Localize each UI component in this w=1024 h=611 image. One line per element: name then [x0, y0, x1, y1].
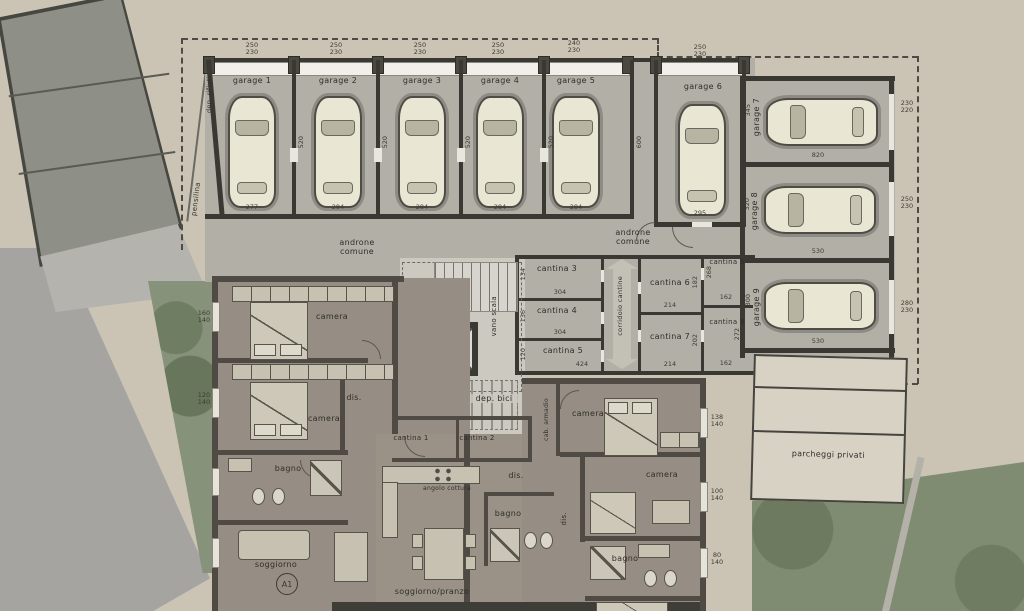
room-label: garage 4	[470, 76, 530, 85]
dimension: 304	[548, 329, 572, 336]
boundary-dashed-left	[181, 38, 183, 250]
cantina-door	[601, 270, 604, 282]
garage-bottom-wall	[205, 214, 634, 219]
wardrobe	[232, 364, 394, 380]
dimension: 268	[706, 266, 713, 278]
wc-fixture	[644, 570, 657, 587]
chair	[412, 534, 423, 548]
car	[764, 282, 876, 330]
car	[228, 96, 276, 208]
garage-divider	[459, 60, 463, 218]
wall	[218, 450, 348, 455]
room-label: garage 5	[546, 76, 606, 85]
dep-bici-label: dep. bici	[466, 394, 522, 403]
parcheggi-privati-label: parcheggi privati	[791, 449, 865, 460]
car	[766, 98, 878, 146]
wall-niche	[374, 148, 382, 162]
apartment-top-wall	[212, 276, 404, 282]
cantina-divider	[517, 298, 603, 301]
dimension: 160 140	[196, 310, 212, 324]
garage9-door	[889, 280, 894, 334]
cantina-divider	[701, 305, 753, 308]
bed	[596, 602, 668, 611]
car	[678, 104, 726, 216]
window	[212, 468, 220, 496]
garage7-top-wall	[744, 76, 895, 81]
boundary-dashed-jog	[657, 38, 659, 58]
washbasin	[228, 458, 252, 472]
garage8-9-divider	[744, 258, 890, 263]
wall	[484, 492, 488, 566]
window	[212, 302, 220, 332]
room-label: bagno	[486, 509, 530, 518]
wardrobe	[232, 286, 394, 302]
dimension: 250 230	[692, 44, 708, 58]
room-label: cantina 8	[700, 258, 754, 266]
bidet-fixture	[272, 488, 285, 505]
dimension: 280 230	[899, 300, 915, 314]
dimension: 214	[658, 361, 682, 368]
room-label: bagno	[266, 464, 310, 473]
room-label: cantina 2	[452, 434, 502, 442]
cantina-door	[601, 350, 604, 362]
bed	[590, 492, 636, 534]
room-label: garage 1	[222, 76, 282, 85]
room-label: garage 8	[750, 192, 759, 230]
room-label: camera	[640, 470, 684, 479]
room-label: angolo cottura	[414, 486, 480, 493]
pillow	[254, 424, 276, 436]
kitchen-counter	[382, 482, 398, 538]
dimension: 284	[562, 204, 590, 211]
dimension: 320	[744, 198, 751, 210]
androne-comune-label: androne comune	[330, 238, 384, 256]
bidet-fixture	[664, 570, 677, 587]
pillow	[632, 402, 652, 414]
room-label: dis.	[504, 471, 528, 480]
dimension: 520	[382, 136, 389, 148]
room-label: cantina 5	[528, 346, 598, 355]
dimension: 600	[636, 136, 643, 148]
car	[764, 186, 876, 234]
window	[700, 408, 708, 438]
dimension: 80 140	[709, 552, 725, 566]
garage-door-6	[658, 62, 744, 76]
dimension: 520	[465, 136, 472, 148]
dimension: 345	[745, 104, 752, 116]
dimension: 424	[570, 361, 594, 368]
dimension: 520	[548, 136, 555, 148]
dimension: 820	[804, 152, 832, 159]
dimension: 162	[714, 360, 738, 367]
dimension: 250 230	[244, 42, 260, 56]
car	[398, 96, 446, 208]
dimension: 250 230	[899, 196, 915, 210]
vano-scala-label: vano scala	[490, 296, 498, 336]
table	[334, 532, 368, 582]
pillow	[608, 402, 628, 414]
sofa	[238, 530, 310, 560]
window	[212, 388, 220, 418]
wall	[392, 416, 532, 420]
room-label: soggiorno	[248, 560, 304, 569]
right-block-left-wall	[740, 76, 745, 358]
room-label: bagno	[603, 554, 647, 563]
androne-comune-label: androne comune	[606, 228, 660, 246]
wc-fixture	[252, 488, 265, 505]
dining-table	[424, 528, 464, 580]
pillow	[280, 344, 302, 356]
wall	[585, 536, 700, 541]
floor-plan: garage 1 garage 2 garage 3 garage 4 gara…	[0, 0, 1024, 611]
wardrobe	[660, 432, 700, 448]
garage-divider	[376, 60, 380, 218]
dimension: 530	[804, 338, 832, 345]
room-label: camera	[310, 312, 354, 321]
stove-icon	[432, 467, 456, 483]
chair	[465, 556, 476, 570]
cantina-bottom-wall	[515, 371, 755, 375]
room-label: garage 3	[392, 76, 452, 85]
garage-divider	[292, 60, 296, 218]
dimension: 214	[658, 302, 682, 309]
dimension: 284	[408, 204, 436, 211]
dimension: 272	[734, 328, 741, 340]
dimension: 230 220	[899, 100, 915, 114]
boundary-dashed-right	[917, 56, 919, 384]
garage5-right-wall	[630, 60, 634, 218]
dimension: 304	[548, 289, 572, 296]
parking-area: parcheggi privati	[750, 354, 908, 504]
dimension: 520	[298, 136, 305, 148]
dimension: 100 140	[709, 488, 725, 502]
wall	[218, 520, 348, 525]
dimension: 182	[692, 276, 699, 288]
cantina-door	[601, 312, 604, 324]
wall	[528, 416, 532, 462]
garage6-left-wall	[654, 60, 658, 226]
wall-niche	[457, 148, 465, 162]
window	[700, 482, 708, 512]
room-label: soggiorno/pranzo	[384, 587, 480, 596]
garage9-bottom-wall	[744, 348, 895, 353]
dimension: 284	[486, 204, 514, 211]
room-label: cantina 1	[386, 434, 436, 442]
room-label: cantina 3	[522, 264, 592, 273]
room-label: dis.	[560, 512, 568, 525]
room-label: cantina 4	[522, 306, 592, 315]
dimension: 284	[324, 204, 352, 211]
car	[552, 96, 600, 208]
garage8-door	[889, 182, 894, 236]
chair	[465, 534, 476, 548]
parking-stall-line	[755, 386, 905, 392]
room-label: dis.	[342, 393, 366, 402]
dimension: 250 230	[412, 42, 428, 56]
window	[212, 538, 220, 568]
boundary-dashed-top	[182, 38, 658, 40]
window	[700, 548, 708, 578]
wall	[580, 452, 585, 542]
room-label: cab. armadio	[544, 398, 551, 441]
chair	[412, 556, 423, 570]
wall	[556, 384, 560, 456]
corridoio-cantine-label: corridoio cantine	[617, 276, 624, 336]
wall	[585, 596, 700, 601]
car	[314, 96, 362, 208]
parking-stall-line	[754, 430, 904, 436]
car	[476, 96, 524, 208]
dimension: 295	[686, 210, 714, 217]
room-label: camera	[302, 414, 346, 423]
wall-niche	[540, 148, 548, 162]
shower	[310, 460, 342, 496]
room-label: garage 6	[673, 82, 733, 91]
garage6-door-gap	[692, 222, 712, 227]
shower	[490, 528, 520, 562]
pillow	[280, 424, 302, 436]
garage7-door	[889, 94, 894, 150]
dimension: 162	[714, 294, 738, 301]
wall	[392, 458, 532, 462]
room-label: garage 7	[752, 98, 761, 136]
dimension: 120 140	[196, 392, 212, 406]
unit-badge: A1	[276, 573, 298, 595]
room-label: cantina 9	[700, 318, 754, 326]
wall-niche	[290, 148, 298, 162]
cantina-divider	[517, 338, 603, 341]
room-label: camera	[566, 409, 610, 418]
dimension: 250 230	[490, 42, 506, 56]
dep-rifiuti-label: dep. rifiuti	[206, 76, 213, 113]
neighbor-building	[1, 0, 179, 261]
dimension: 530	[804, 248, 832, 255]
wall	[392, 282, 398, 434]
wall	[484, 492, 554, 496]
desk	[652, 500, 690, 524]
garage7-8-divider	[744, 162, 890, 167]
dimension: 277	[238, 204, 266, 211]
dimension: 202	[692, 334, 699, 346]
cantina-divider	[641, 312, 703, 315]
dimension: 138 140	[709, 414, 725, 428]
room-label: garage 2	[308, 76, 368, 85]
garage-doors-1-5	[209, 62, 630, 76]
pillow	[254, 344, 276, 356]
wc-fixture	[524, 532, 537, 549]
dimension: 250 230	[328, 42, 344, 56]
dimension: 240 230	[566, 40, 582, 54]
apartment-right-top-wall	[522, 378, 705, 384]
bidet-fixture	[540, 532, 553, 549]
